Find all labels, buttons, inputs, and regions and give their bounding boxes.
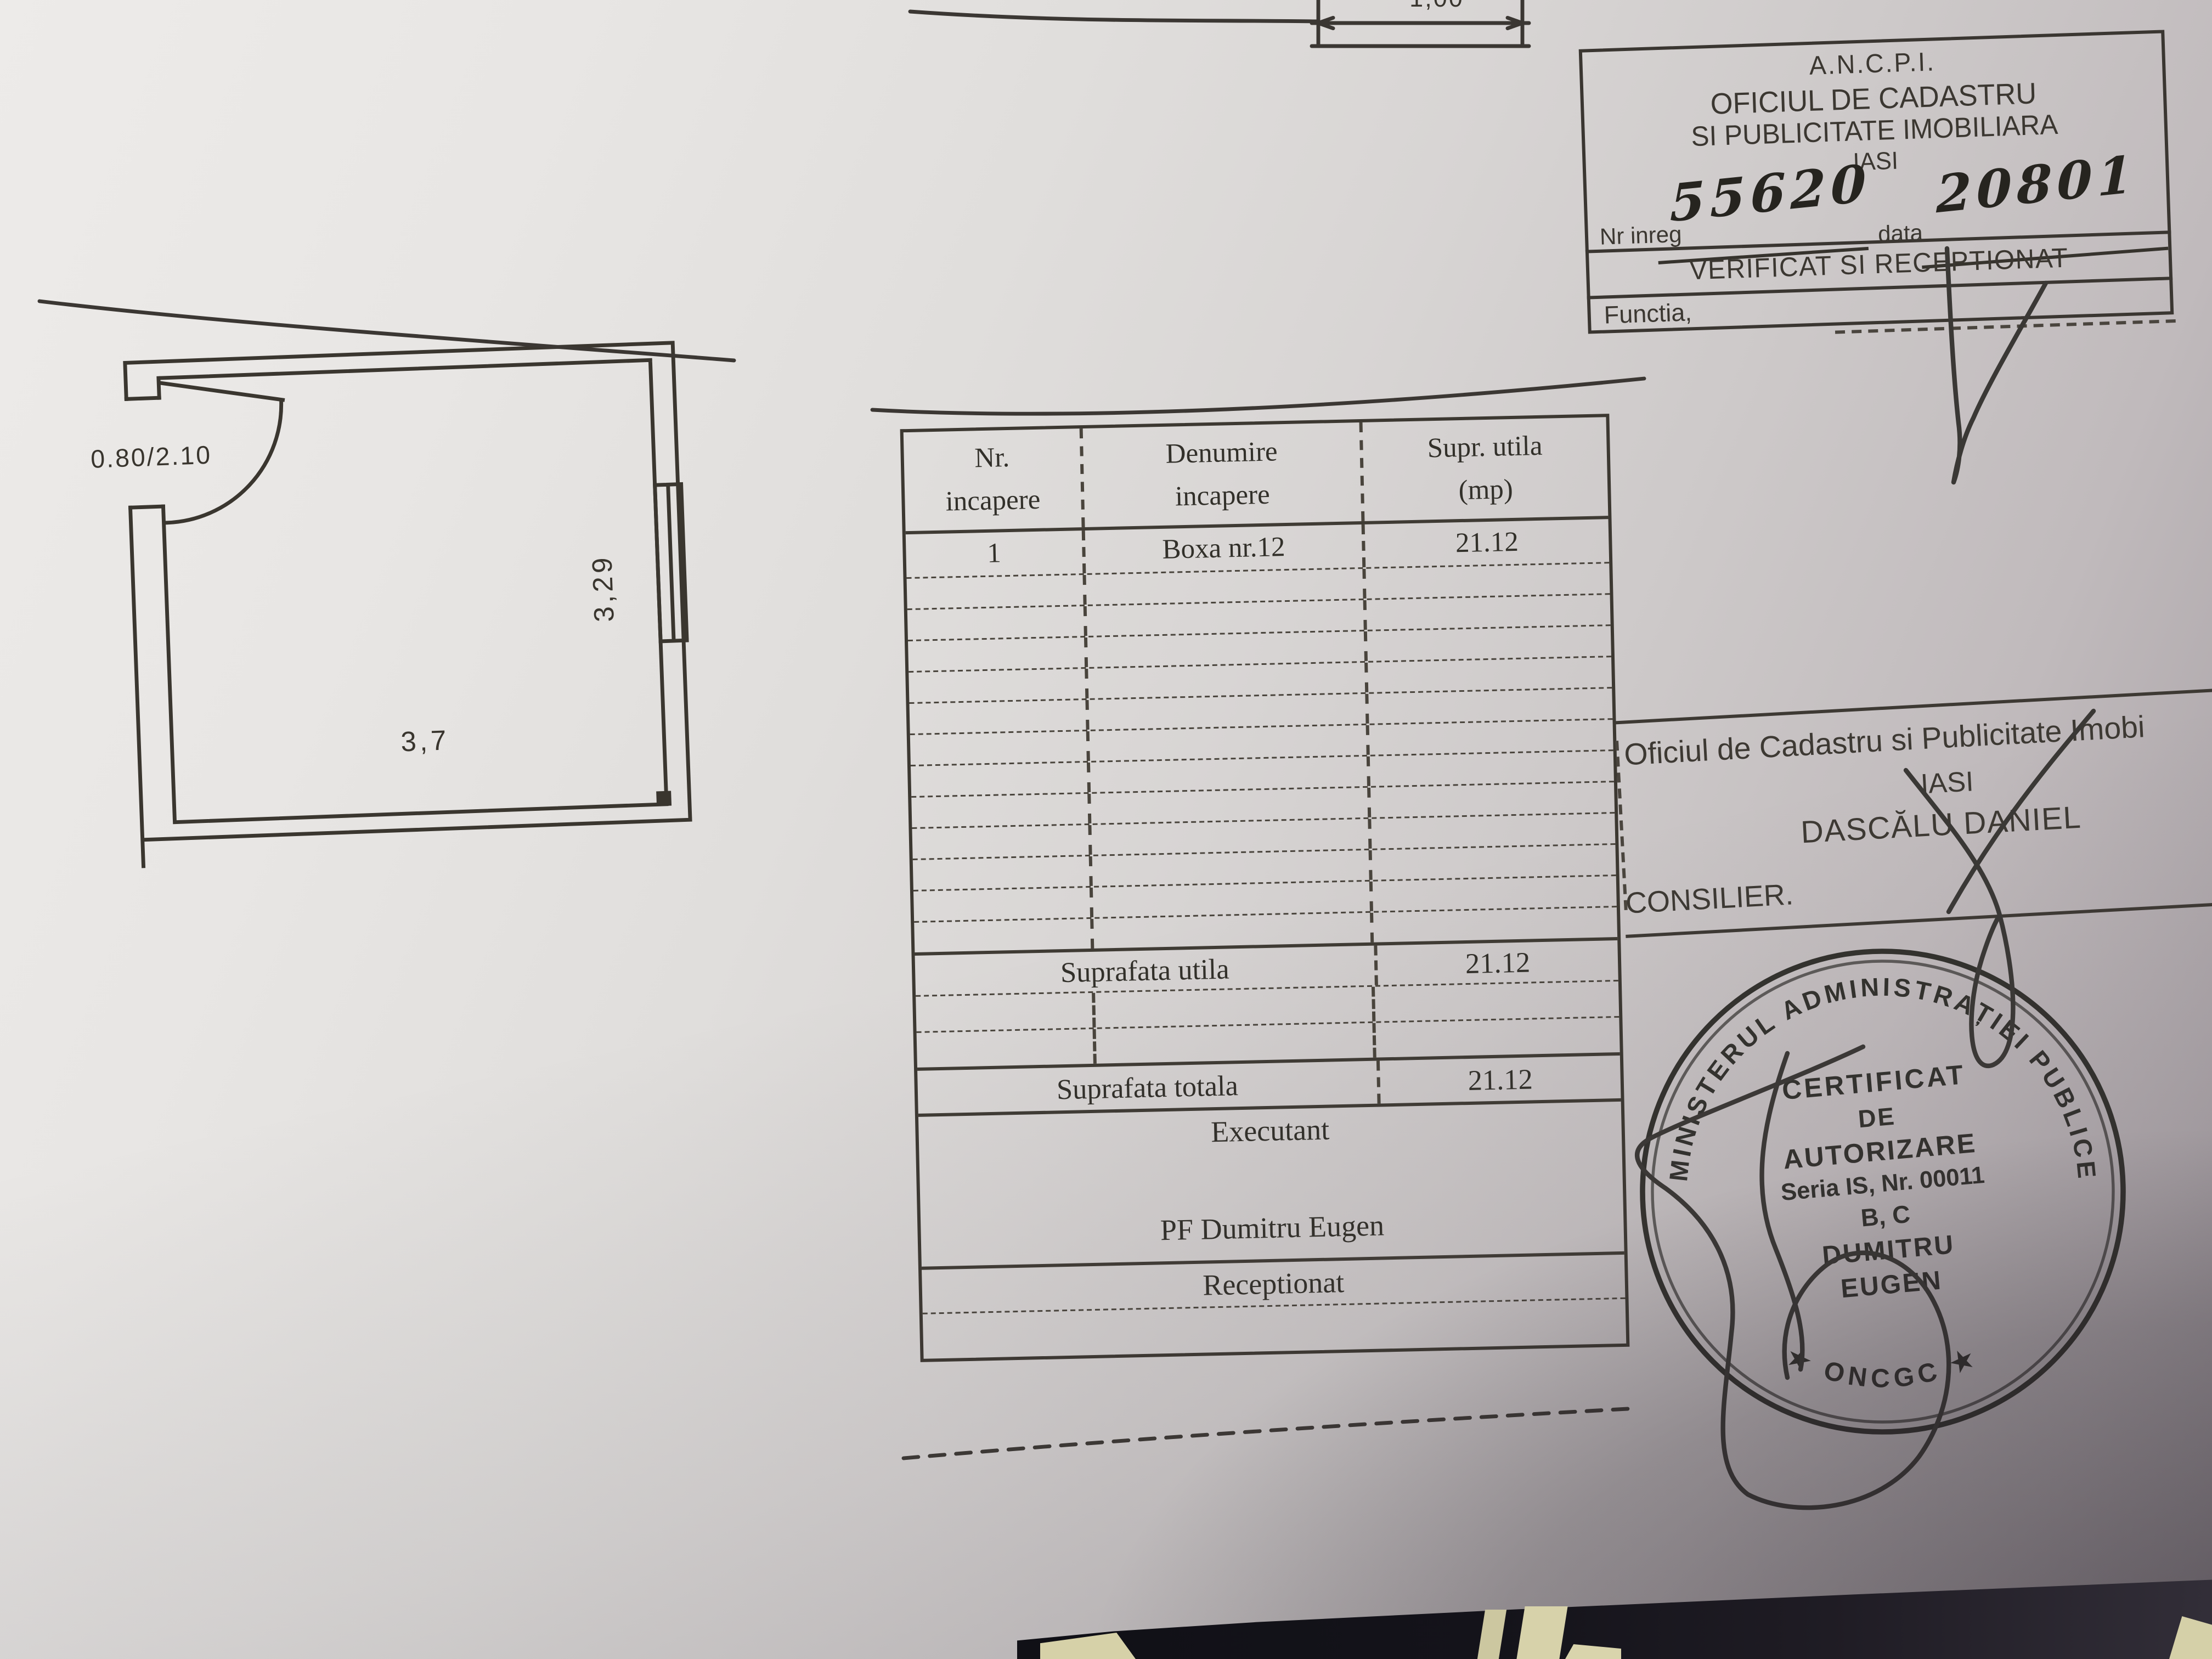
top-fragment-dimension-value: 1,00 xyxy=(1386,0,1488,13)
cell-room-name: Boxa nr.12 xyxy=(1085,524,1366,573)
office-stamp-title: CONSILIER. xyxy=(1624,878,1794,921)
top-fragment-dimension: 1,00 xyxy=(1386,0,1488,18)
door-dimension-label: 0.80/2.10 xyxy=(90,441,212,473)
function-label: Functia, xyxy=(1604,299,1692,330)
authorization-round-stamp: MINISTERUL ADMINISTRAȚIEI PUBLICE ★ ONCG… xyxy=(1613,922,2172,1527)
office-stamp: Oficiul de Cadastru si Publicitate Imobi… xyxy=(1614,688,2212,938)
suprafata-utila-value: 21.12 xyxy=(1377,940,1618,985)
cell-room-number: 1 xyxy=(906,531,1086,577)
fragment-leader-line xyxy=(910,12,1318,21)
desk-beige-stripe xyxy=(1516,1606,1567,1659)
executant-label: Executant xyxy=(1211,1113,1330,1150)
table-header-row: Nr. incapere Denumire incapere Supr. uti… xyxy=(904,417,1609,531)
below-table-dashed-line xyxy=(904,1409,1628,1458)
door-leaf xyxy=(160,379,283,404)
corner-mark xyxy=(656,791,672,806)
floor-plan: 0.80/2.10 3,7 3,29 xyxy=(55,267,785,902)
header-nr-incapere: Nr. incapere xyxy=(904,428,1085,531)
floor-plan-drawing: 0.80/2.10 3,7 3,29 xyxy=(55,267,785,902)
header-suprafata-utila: Supr. utila (mp) xyxy=(1363,417,1609,521)
depth-dimension-label: 3,29 xyxy=(586,554,619,622)
svg-text:★ ONCGC ★: ★ ONCGC ★ xyxy=(1782,1341,1984,1393)
registration-stamp-box: A.N.C.P.I. OFICIUL DE CADASTRU SI PUBLIC… xyxy=(1579,30,2174,334)
stamp-ring-text-bottom: ★ ONCGC ★ xyxy=(1782,1341,1984,1393)
width-dimension-label: 3,7 xyxy=(400,724,450,757)
cell-room-area: 21.12 xyxy=(1365,519,1610,567)
desk-dark-surface xyxy=(1017,1567,2212,1659)
header-denumire-incapere: Denumire incapere xyxy=(1083,422,1365,527)
suprafata-totala-value: 21.12 xyxy=(1380,1056,1621,1104)
photo-of-document: 1,00 0.80/2.10 3,7 3,29 xyxy=(0,0,2212,1659)
document-paper: 1,00 0.80/2.10 3,7 3,29 xyxy=(0,0,2212,1659)
table-row-executant: Executant PF Dumitru Eugen xyxy=(918,1098,1624,1267)
desk-edge xyxy=(1017,1567,2212,1659)
rooms-table: Nr. incapere Denumire incapere Supr. uti… xyxy=(900,414,1630,1362)
table-empty-rows-mid xyxy=(906,562,1617,952)
stamp-center-text: CERTIFICAT DE AUTORIZARE Seria IS, Nr. 0… xyxy=(1682,1050,2083,1320)
executant-name: PF Dumitru Eugen xyxy=(1160,1209,1384,1248)
divider-wavy-line xyxy=(872,379,1644,414)
